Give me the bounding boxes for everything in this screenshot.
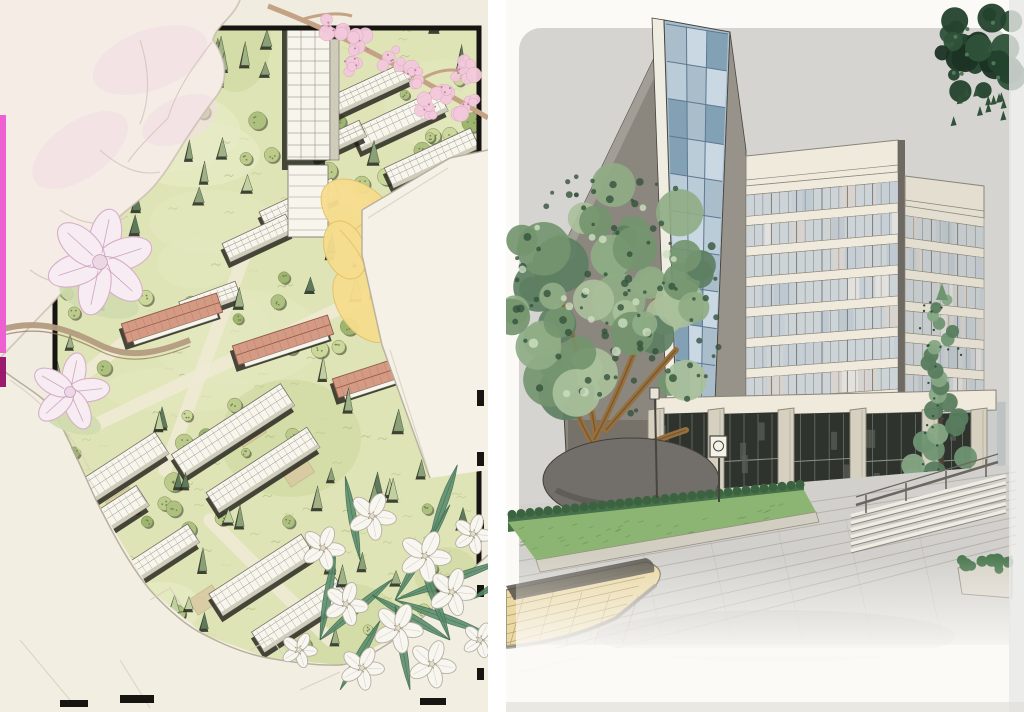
building-perspective-canvas [506, 0, 1024, 712]
building-perspective-artwork [506, 0, 1024, 712]
site-plan-canvas [0, 0, 488, 712]
photo-of-two-renderings [0, 0, 1024, 712]
site-plan-artwork [0, 0, 488, 712]
